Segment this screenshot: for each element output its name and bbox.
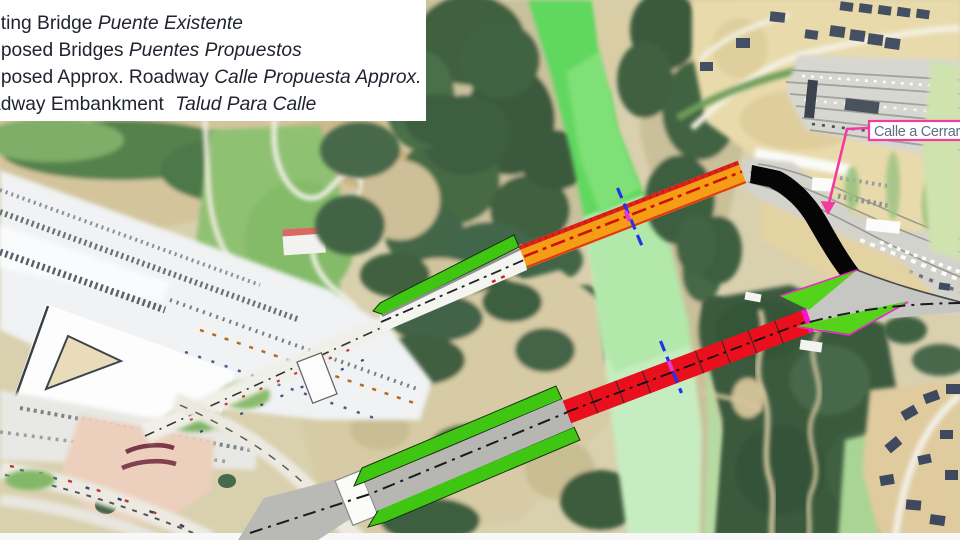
svg-text:Existing Bridge Puente Existen: Existing Bridge Puente Existente [0,13,243,34]
svg-text:Roadway Embankment Talud Para: Roadway Embankment Talud Para Calle [0,94,316,115]
svg-text:Proposed Bridges Puentes Propu: Proposed Bridges Puentes Propuestos [0,40,302,61]
svg-text:Calle a Cerrar: Calle a Cerrar [874,124,960,140]
svg-text:Proposed Approx. Roadway Calle: Proposed Approx. Roadway Calle Propuesta… [0,67,421,88]
